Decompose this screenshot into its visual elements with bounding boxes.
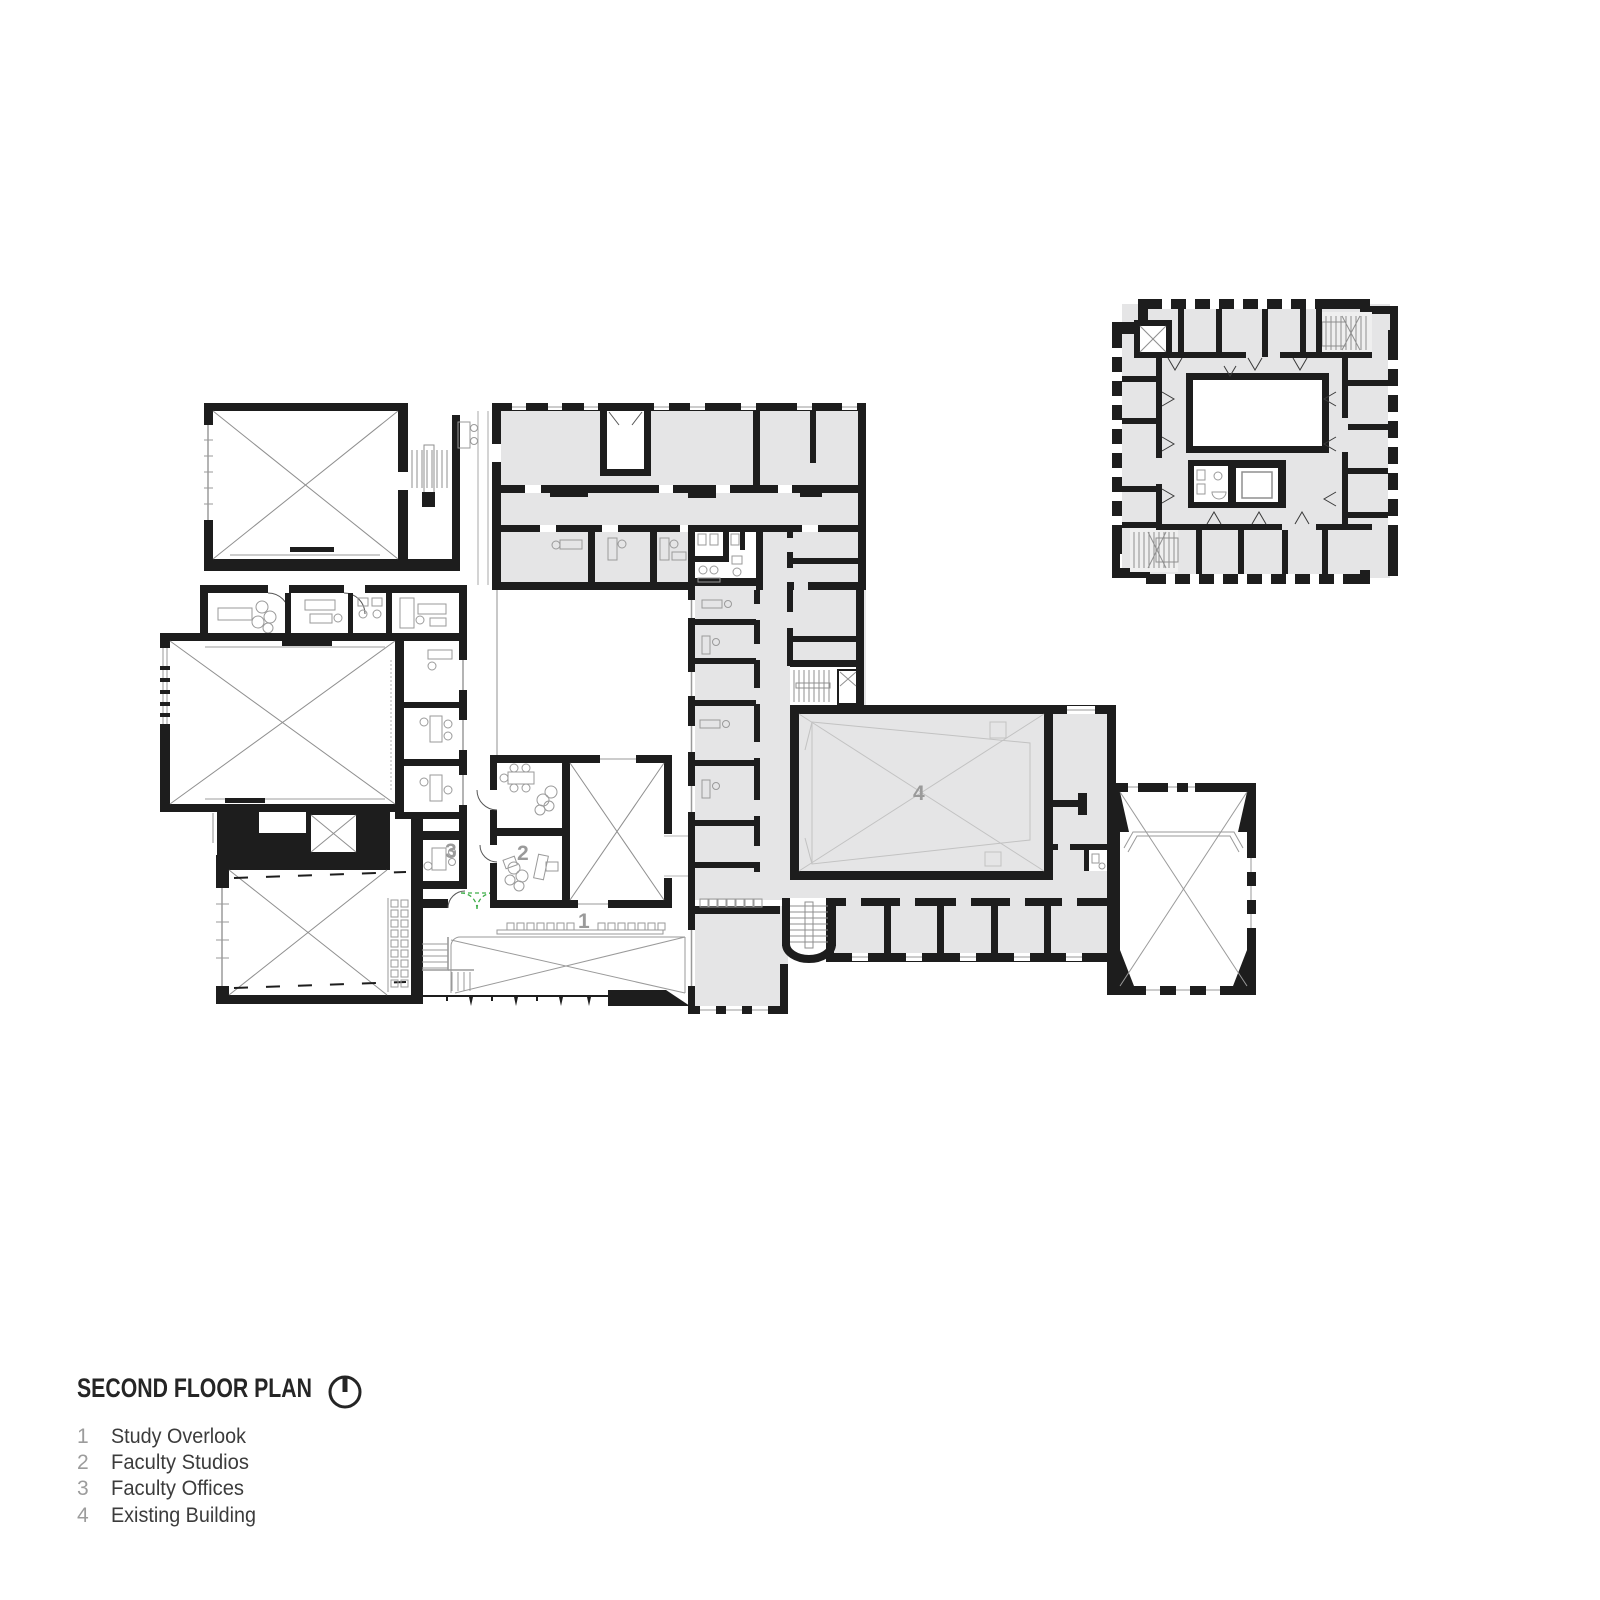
svg-text:3: 3 (445, 840, 457, 863)
svg-text:1: 1 (77, 1425, 89, 1448)
svg-text:Faculty Offices: Faculty Offices (111, 1477, 244, 1500)
svg-text:2: 2 (77, 1451, 89, 1474)
svg-text:SECOND FLOOR PLAN: SECOND FLOOR PLAN (77, 1373, 312, 1403)
svg-text:Study Overlook: Study Overlook (111, 1425, 246, 1448)
svg-text:1: 1 (578, 910, 590, 933)
svg-text:2: 2 (517, 842, 529, 865)
svg-text:Existing Building: Existing Building (111, 1504, 256, 1527)
svg-text:4: 4 (77, 1504, 89, 1527)
svg-text:Faculty Studios: Faculty Studios (111, 1451, 249, 1474)
svg-text:3: 3 (77, 1477, 89, 1500)
svg-text:4: 4 (913, 782, 925, 805)
